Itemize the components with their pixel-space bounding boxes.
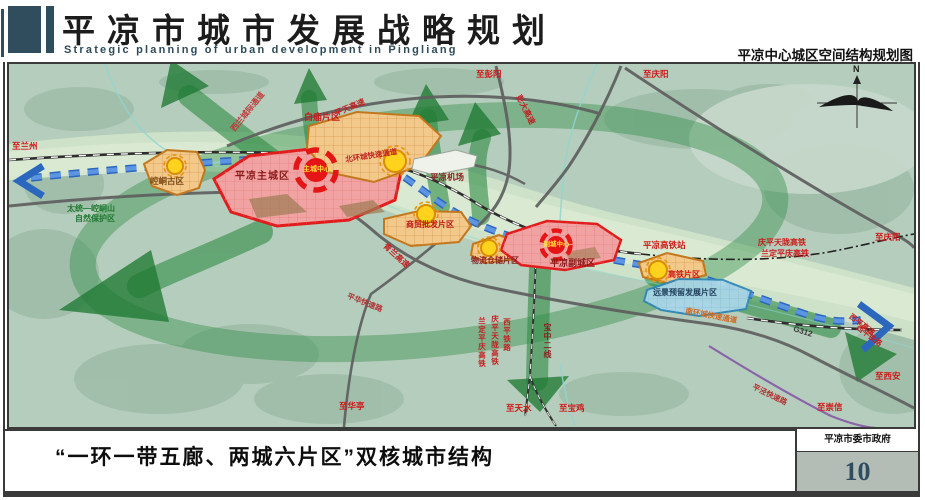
label-to-baoji: 至宝鸡 (559, 404, 585, 413)
label-qptl-hsr-v: 庆平天陇高铁 (491, 315, 499, 366)
label-sub-center: 副城中心 (540, 242, 573, 249)
compass-n-label: N (853, 65, 860, 74)
label-nature-reserve-1: 太统—崆峒山 (67, 205, 115, 213)
label-airport: 平凉机场 (430, 173, 464, 182)
label-sub-city: 平凉副城区 (550, 259, 595, 268)
footer-caption: “一环一带五廊、两城六片区”双核城市结构 (55, 441, 494, 471)
planning-map: N 至兰州 太统—崆峒山 自然保护区 西兰城际通道 平天高速 北环城快速通道 白… (7, 62, 916, 429)
label-baimiao-zone: 白庙片区 (304, 113, 340, 122)
page-subtitle-en: Strategic planning of urban development … (64, 44, 458, 56)
map-sheet-title: 平凉中心城区空间结构规划图 (738, 44, 914, 64)
label-logistics-zone: 物流仓储片区 (471, 257, 519, 265)
label-to-huating: 至华亭 (339, 402, 365, 411)
label-hsr-station: 平凉高铁站 (643, 241, 686, 250)
label-main-city: 平凉主城区 (235, 172, 290, 182)
frame-right (918, 62, 920, 497)
logo-block (8, 6, 41, 53)
footer-org: 平凉市委市政府 (797, 429, 918, 452)
logo-accent-bar (46, 6, 54, 53)
label-to-qingyang-right: 至庆阳 (875, 233, 901, 242)
footer-page-box: 平凉市委市政府 10 (795, 429, 918, 491)
label-qptl-hsr: 庆平天陇高铁 (758, 239, 806, 247)
header-edge-line (1, 9, 4, 57)
page-number: 10 (797, 452, 918, 492)
label-ldpq-hsr: 兰定平庆高铁 (761, 250, 809, 258)
label-to-pengyang: 至彭阳 (476, 70, 502, 79)
label-trade-zone: 商贸批发片区 (406, 221, 454, 229)
frame-bottom-bar (3, 491, 920, 497)
label-baozhong-rail: 宝中二线 (543, 323, 551, 359)
label-main-center: 主城中心 (298, 166, 336, 173)
label-nature-reserve-2: 自然保护区 (75, 215, 115, 223)
label-kongtong-zone: 崆峒古区 (150, 177, 184, 186)
label-hsr-zone: 高铁片区 (668, 271, 700, 279)
label-to-qingyang-top: 至庆阳 (643, 70, 669, 79)
label-reserved-zone: 远景预留发展片区 (653, 289, 717, 297)
label-to-xian: 至西安 (875, 372, 901, 381)
label-to-chongxin: 至崇信 (817, 403, 843, 412)
label-xiping-rail-v: 西平铁路 (503, 318, 511, 352)
label-to-lanzhou: 至兰州 (12, 142, 38, 151)
label-to-tianshui: 至天水 (506, 404, 532, 413)
label-ldpq-hsr-v: 兰定平庆高铁 (478, 317, 486, 368)
planning-document-page: 平凉市城市发展战略规划 Strategic planning of urban … (0, 0, 925, 500)
